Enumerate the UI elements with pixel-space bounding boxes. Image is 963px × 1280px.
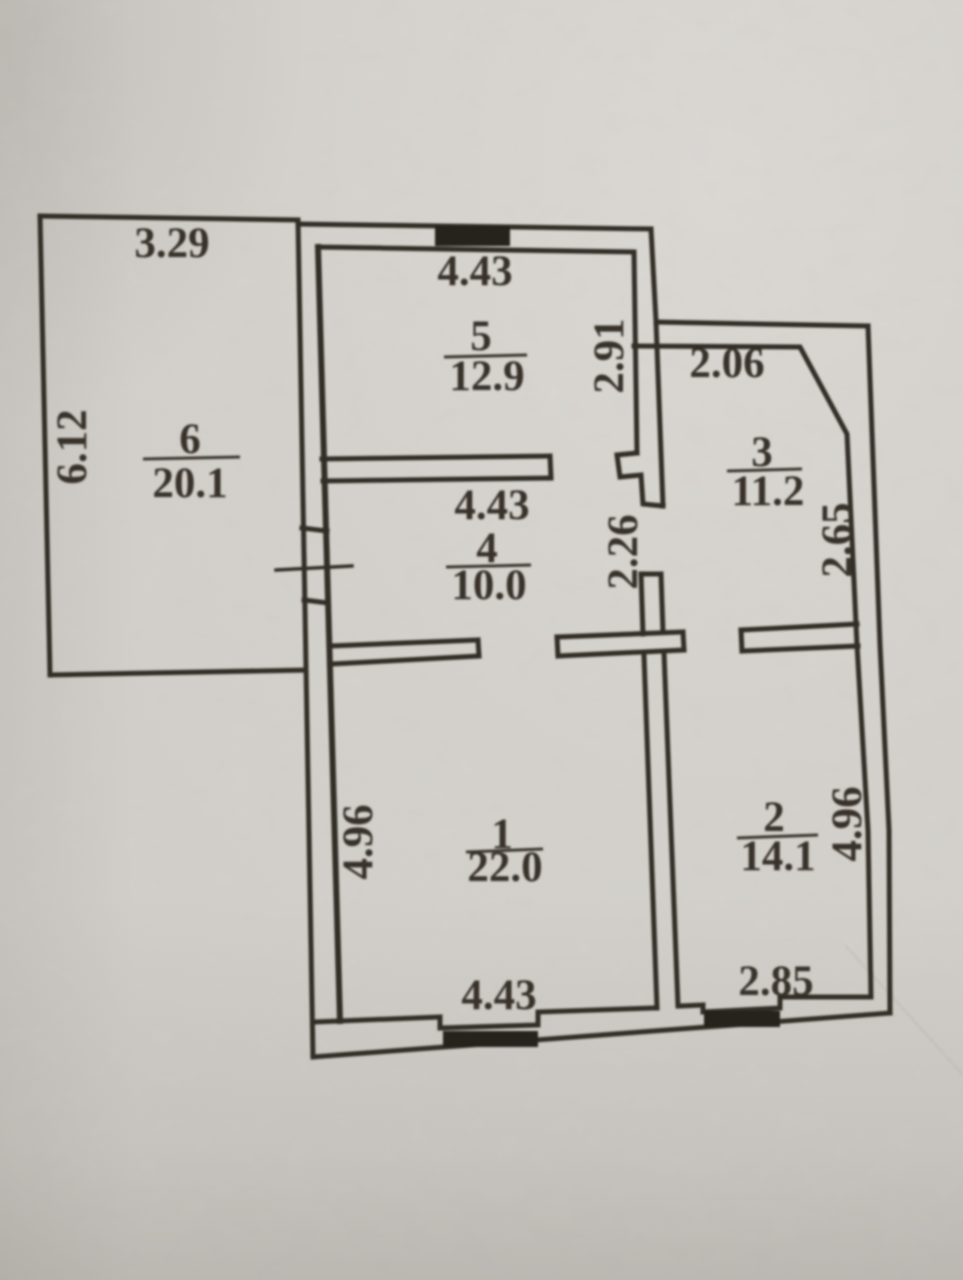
svg-text:2.06: 2.06	[689, 340, 764, 387]
svg-text:3.29: 3.29	[134, 220, 209, 267]
svg-text:14.1: 14.1	[740, 833, 815, 880]
svg-text:6: 6	[179, 416, 201, 463]
svg-text:2.26: 2.26	[600, 514, 647, 589]
svg-text:20.1: 20.1	[152, 460, 227, 507]
svg-text:4.43: 4.43	[437, 248, 512, 295]
svg-text:2.65: 2.65	[814, 502, 861, 577]
svg-text:4.96: 4.96	[335, 804, 382, 879]
svg-text:2.91: 2.91	[586, 318, 633, 393]
svg-text:12.9: 12.9	[449, 353, 524, 400]
svg-text:10.0: 10.0	[451, 562, 526, 609]
svg-text:4.43: 4.43	[461, 972, 536, 1019]
svg-text:6.12: 6.12	[49, 409, 96, 484]
svg-text:2.85: 2.85	[738, 958, 813, 1005]
svg-text:11.2: 11.2	[732, 468, 805, 515]
svg-text:4.96: 4.96	[824, 786, 871, 861]
svg-text:4.43: 4.43	[454, 482, 529, 529]
